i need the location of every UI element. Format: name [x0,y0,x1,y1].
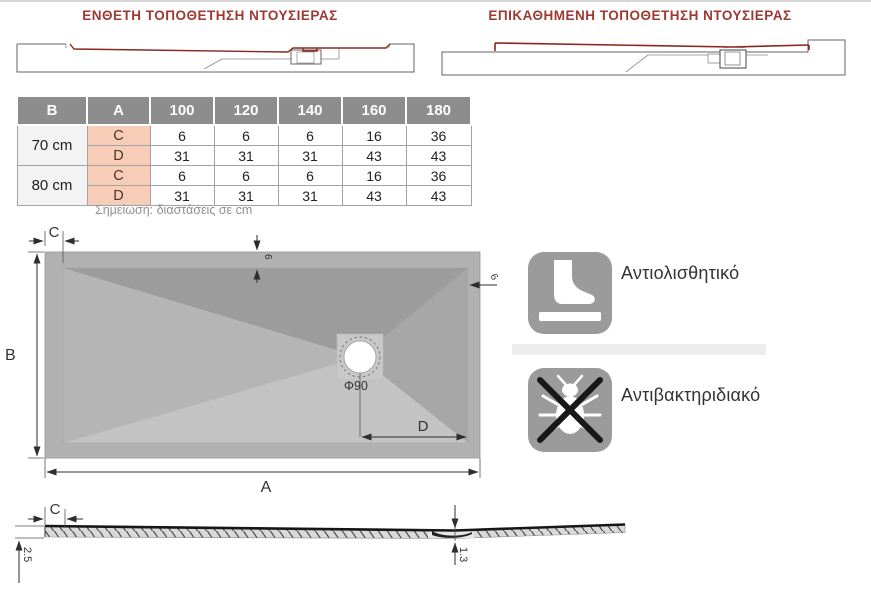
value-cell: 31 [278,146,342,166]
profile-dim-c: C [50,501,61,518]
col-header-180: 180 [406,96,471,125]
tray-profile-section: C 2.5 1.3 [0,495,660,593]
value-cell: 6 [278,125,342,146]
size-cell: 70 cm [17,125,87,166]
crossed-bacteria-icon [528,368,612,452]
dim-label-c: C [49,224,60,241]
dim-cell: C [87,125,150,146]
table-row: 80 cm C 6 6 6 16 36 [17,166,471,186]
inset-tray-profile [70,44,390,52]
anti-slip-label: Αντιολισθητικό [621,263,739,284]
col-header-100: 100 [150,96,214,125]
value-cell: 6 [214,166,278,186]
value-cell: 43 [406,186,471,206]
col-header-160: 160 [342,96,406,125]
dim-label-a: A [261,479,272,496]
value-cell: 6 [150,166,214,186]
value-cell: 31 [150,146,214,166]
table-note: Σημείωση: διαστάσεις σε cm [95,203,252,217]
dim-label-d: D [418,418,429,435]
tray-top-view: C B 6 6 A D Φ90 [0,223,510,500]
shower-tray-spec-sheet: ΕΝΘΕΤΗ ΤΟΠΟΘΕΤΗΣΗ ΝΤΟΥΣΙΕΡΑΣ ΕΠΙΚΑΘΗΜΕΝΗ… [0,0,871,593]
value-cell: 6 [150,125,214,146]
value-cell: 31 [214,146,278,166]
rim-width-right: 6 [487,272,500,283]
inset-installation-drawing [8,36,428,82]
drain-diameter-label: Φ90 [344,379,368,393]
edge-thickness-label: 2.5 [21,547,33,562]
inset-installation-title: ΕΝΘΕΤΗ ΤΟΠΟΘΕΤΗΣΗ ΝΤΟΥΣΙΕΡΑΣ [0,8,420,23]
value-cell: 43 [342,146,406,166]
features-divider [512,344,766,355]
surface-installation-drawing [438,34,868,82]
dim-cell: D [87,146,150,166]
dim-label-b: B [5,347,16,364]
drain-thickness-label: 1.3 [457,547,469,562]
value-cell: 16 [342,125,406,146]
surface-tray-profile [495,43,809,51]
dimensions-table: B A 100 120 140 160 180 70 cm C 6 6 6 16… [16,95,472,206]
surface-installation-title: ΕΠΙΚΑΘΗΜΕΝΗ ΤΟΠΟΘΕΤΗΣΗ ΝΤΟΥΣΙΕΡΑΣ [440,8,840,23]
value-cell: 43 [342,186,406,206]
foot-on-surface-icon [528,252,612,334]
value-cell: 16 [342,166,406,186]
col-header-120: 120 [214,96,278,125]
drain-circle [344,341,376,373]
value-cell: 43 [406,146,471,166]
value-cell: 36 [406,125,471,146]
value-cell: 6 [278,166,342,186]
antibacterial-label: Αντιβακτηριδιακό [621,385,760,406]
table-header-row: B A 100 120 140 160 180 [17,96,471,125]
dim-cell: C [87,166,150,186]
value-cell: 36 [406,166,471,186]
size-cell: 80 cm [17,166,87,206]
col-header-140: 140 [278,96,342,125]
antibacterial-tile [528,368,612,452]
table-row: 70 cm C 6 6 6 16 36 [17,125,471,146]
top-border [0,0,871,2]
value-cell: 31 [278,186,342,206]
value-cell: 6 [214,125,278,146]
rim-width-top: 6 [262,254,273,260]
col-header-a: A [87,96,150,125]
anti-slip-tile [528,252,612,334]
col-header-b: B [17,96,87,125]
